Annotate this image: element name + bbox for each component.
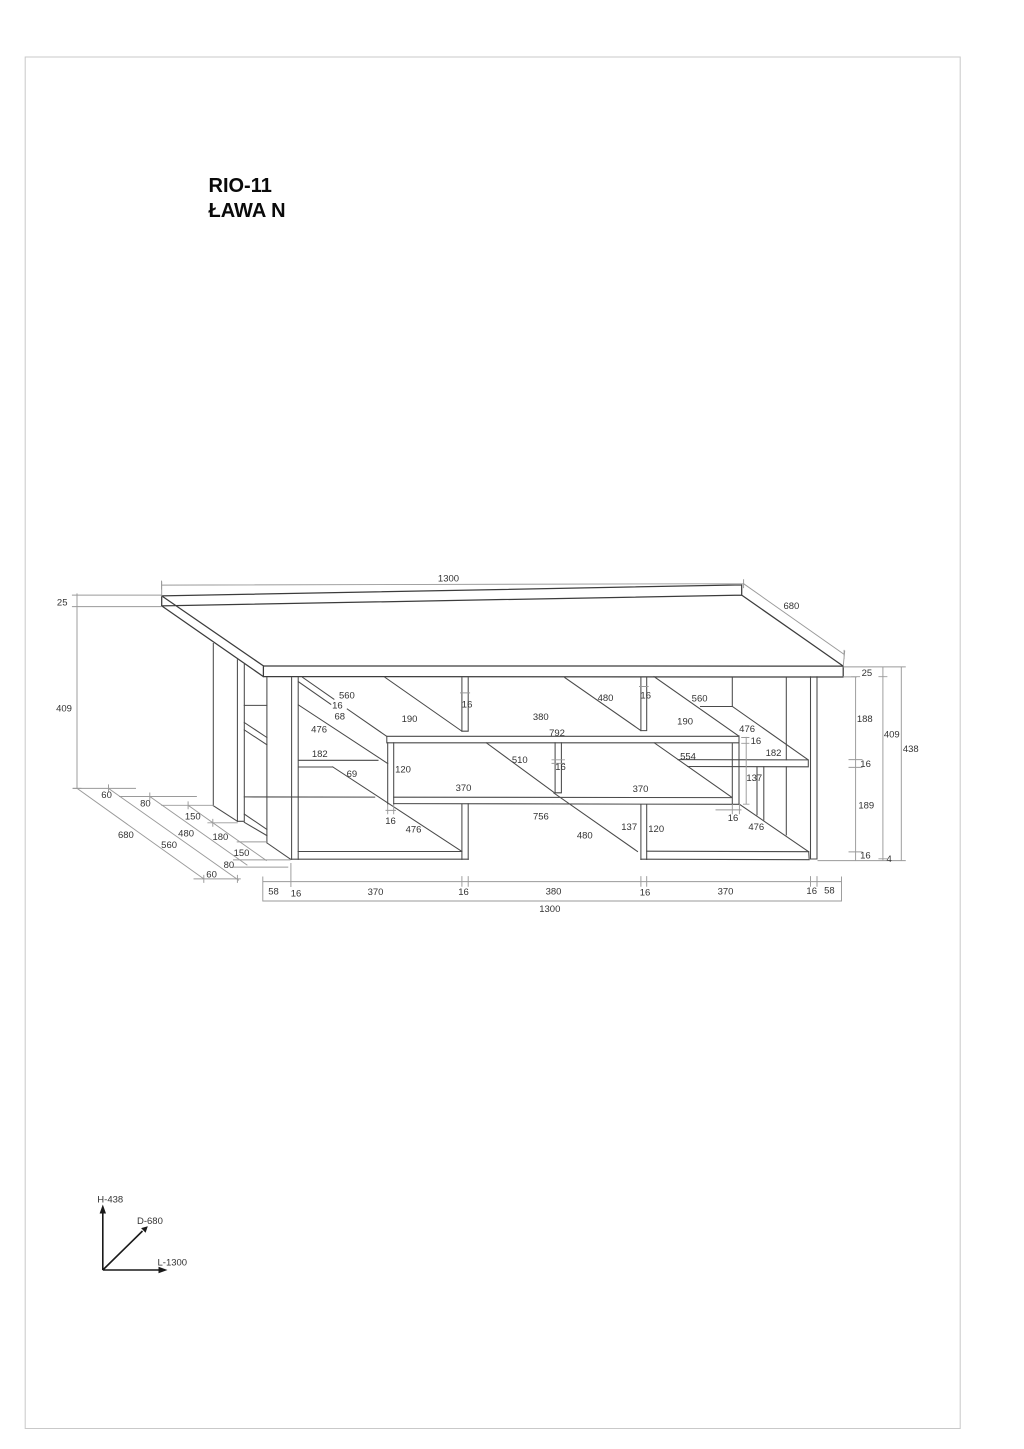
svg-text:58: 58 xyxy=(268,887,279,898)
svg-text:190: 190 xyxy=(677,717,693,728)
svg-text:370: 370 xyxy=(633,784,649,795)
svg-text:150: 150 xyxy=(185,812,201,823)
svg-text:RIO-11: RIO-11 xyxy=(209,175,272,197)
svg-text:560: 560 xyxy=(692,694,708,705)
svg-text:69: 69 xyxy=(347,769,358,780)
svg-text:476: 476 xyxy=(406,824,422,835)
svg-text:4: 4 xyxy=(887,854,892,865)
svg-text:H-438: H-438 xyxy=(97,1195,123,1206)
svg-text:409: 409 xyxy=(56,704,72,715)
svg-text:476: 476 xyxy=(739,724,755,735)
svg-text:25: 25 xyxy=(57,597,68,608)
svg-text:16: 16 xyxy=(640,888,651,899)
svg-text:380: 380 xyxy=(533,712,549,723)
svg-text:16: 16 xyxy=(458,887,469,898)
svg-text:120: 120 xyxy=(395,765,411,776)
svg-text:16: 16 xyxy=(728,813,739,824)
svg-text:792: 792 xyxy=(549,728,565,739)
svg-text:16: 16 xyxy=(860,851,871,862)
svg-text:188: 188 xyxy=(857,714,873,725)
svg-text:137: 137 xyxy=(746,773,762,784)
svg-text:16: 16 xyxy=(462,699,473,710)
svg-text:16: 16 xyxy=(751,736,762,747)
svg-text:58: 58 xyxy=(824,886,835,897)
svg-text:80: 80 xyxy=(140,799,151,810)
svg-text:480: 480 xyxy=(598,693,614,704)
svg-text:182: 182 xyxy=(312,749,328,760)
svg-text:560: 560 xyxy=(161,840,177,851)
svg-text:16: 16 xyxy=(332,701,343,712)
svg-text:60: 60 xyxy=(101,790,112,801)
svg-text:438: 438 xyxy=(903,744,919,755)
svg-text:D-680: D-680 xyxy=(137,1216,163,1227)
svg-text:L-1300: L-1300 xyxy=(158,1258,188,1269)
svg-text:16: 16 xyxy=(555,762,566,773)
svg-text:189: 189 xyxy=(858,801,874,812)
svg-text:480: 480 xyxy=(178,829,194,840)
svg-text:554: 554 xyxy=(680,752,696,763)
svg-text:680: 680 xyxy=(118,830,134,841)
svg-text:16: 16 xyxy=(860,759,871,770)
svg-text:120: 120 xyxy=(648,824,664,835)
svg-text:756: 756 xyxy=(533,812,549,823)
svg-text:476: 476 xyxy=(311,724,327,735)
svg-text:370: 370 xyxy=(718,887,734,898)
svg-text:370: 370 xyxy=(456,783,472,794)
svg-text:190: 190 xyxy=(402,714,418,725)
svg-text:80: 80 xyxy=(224,860,235,871)
svg-text:68: 68 xyxy=(335,712,346,723)
svg-text:1300: 1300 xyxy=(438,573,459,584)
svg-text:480: 480 xyxy=(577,830,593,841)
svg-text:150: 150 xyxy=(234,848,250,859)
svg-text:16: 16 xyxy=(806,886,817,897)
svg-text:510: 510 xyxy=(512,755,528,766)
svg-text:1300: 1300 xyxy=(539,904,560,915)
svg-text:182: 182 xyxy=(766,748,782,759)
svg-text:16: 16 xyxy=(291,888,302,899)
svg-text:409: 409 xyxy=(884,729,900,740)
svg-text:16: 16 xyxy=(385,816,396,827)
svg-text:16: 16 xyxy=(640,691,651,702)
svg-text:60: 60 xyxy=(206,870,217,881)
svg-text:180: 180 xyxy=(212,832,228,843)
svg-text:25: 25 xyxy=(862,668,873,679)
svg-text:680: 680 xyxy=(783,601,799,612)
svg-text:380: 380 xyxy=(546,887,562,898)
svg-text:370: 370 xyxy=(368,887,384,898)
svg-text:ŁAWA N: ŁAWA N xyxy=(209,200,286,222)
svg-text:137: 137 xyxy=(621,822,637,833)
svg-text:476: 476 xyxy=(748,822,764,833)
